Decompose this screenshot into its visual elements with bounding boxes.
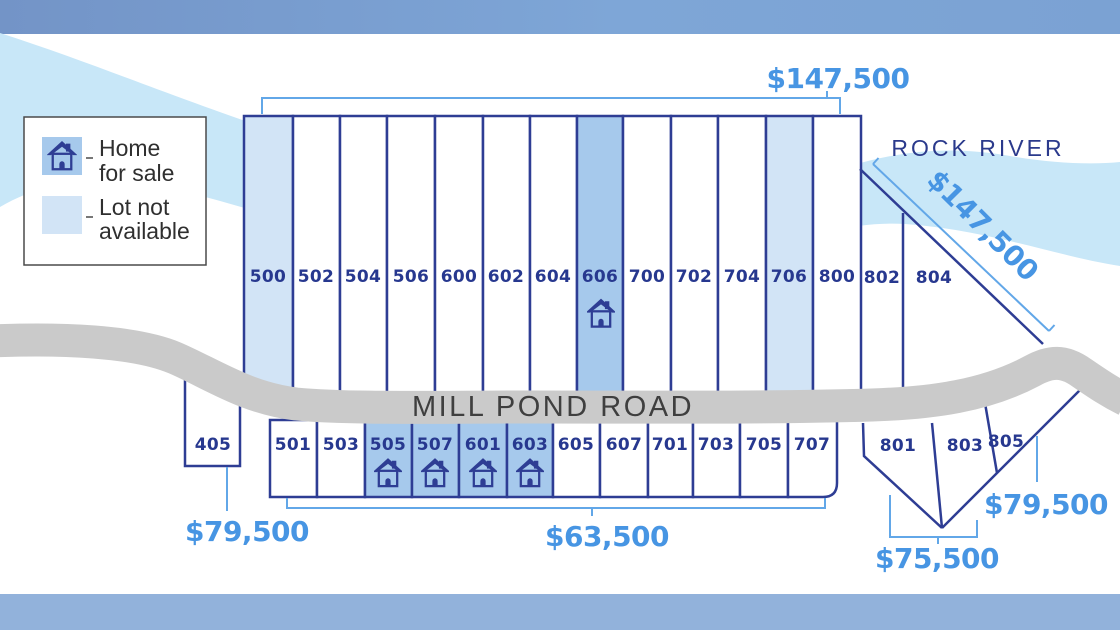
lot-number-405: 405	[195, 435, 231, 455]
bottom-row-lots	[270, 420, 837, 497]
lot-number-607: 607	[606, 435, 642, 455]
lot-605	[553, 420, 600, 497]
bottom-banner-bar	[0, 594, 1120, 630]
top-row-lots	[244, 116, 861, 393]
lot-number-602: 602	[488, 267, 524, 287]
lot-number-801: 801	[880, 436, 916, 456]
lot-707	[788, 420, 837, 497]
lot-number-702: 702	[676, 267, 712, 287]
lot-800	[813, 116, 861, 393]
legend-lot-not-available-label-line2: available	[99, 218, 190, 244]
lot-number-704: 704	[724, 267, 760, 287]
lot-number-701: 701	[652, 435, 688, 455]
top-banner-bar	[0, 0, 1120, 34]
lot-number-503: 503	[323, 435, 359, 455]
lot-map-infographic: MILL POND ROAD 500 502 504 506 600 602 6…	[0, 0, 1120, 630]
lot-405-price: $79,500	[185, 515, 309, 548]
lot-number-501: 501	[275, 435, 311, 455]
lot-number-505: 505	[370, 435, 406, 455]
lot-604	[530, 116, 577, 393]
legend-home-for-sale-label-line2: for sale	[99, 160, 174, 186]
road-name-label: MILL POND ROAD	[412, 391, 694, 423]
lot-number-703: 703	[698, 435, 734, 455]
lot-706	[766, 116, 813, 393]
top-row-price: $147,500	[766, 62, 909, 95]
lot-number-804: 804	[916, 268, 952, 288]
lot-number-604: 604	[535, 267, 571, 287]
lot-506	[387, 116, 435, 393]
lot-number-707: 707	[794, 435, 830, 455]
lot-number-605: 605	[558, 435, 594, 455]
lot-number-601: 601	[465, 435, 501, 455]
lot-500	[244, 116, 293, 393]
river-name-label: ROCK RIVER	[891, 135, 1064, 161]
lot-number-800: 800	[819, 267, 855, 287]
lot-805-price: $79,500	[984, 488, 1108, 521]
lot-number-705: 705	[746, 435, 782, 455]
lot-703	[693, 420, 740, 497]
lot-number-506: 506	[393, 267, 429, 287]
lot-704	[718, 116, 766, 393]
lot-602	[483, 116, 530, 393]
lot-606	[577, 116, 623, 393]
map-canvas: MILL POND ROAD 500 502 504 506 600 602 6…	[0, 0, 1120, 630]
bottom-row-price: $63,500	[545, 520, 669, 553]
lot-501	[270, 420, 317, 497]
top-row-lot-numbers: 500 502 504 506 600 602 604 606 700 702 …	[250, 267, 952, 288]
lot-number-802: 802	[864, 268, 900, 288]
lot-number-600: 600	[441, 267, 477, 287]
lots-801-803-price: $75,500	[875, 542, 999, 575]
legend-lot-not-available-label-line1: Lot not	[99, 194, 170, 220]
lot-number-500: 500	[250, 267, 286, 287]
lot-number-700: 700	[629, 267, 665, 287]
lot-607	[600, 420, 648, 497]
lot-705	[740, 420, 788, 497]
legend-lot-not-available-swatch	[42, 196, 82, 234]
lot-504	[340, 116, 387, 393]
lot-600	[435, 116, 483, 393]
lot-700	[623, 116, 671, 393]
lot-503	[317, 420, 365, 497]
lot-number-606: 606	[582, 267, 618, 287]
lot-number-805: 805	[988, 432, 1024, 452]
lot-702	[671, 116, 718, 393]
lot-number-803: 803	[947, 436, 983, 456]
lot-502	[293, 116, 340, 393]
lot-701	[648, 420, 693, 497]
lot-number-507: 507	[417, 435, 453, 455]
lot-number-504: 504	[345, 267, 381, 287]
legend-home-for-sale-label-line1: Home	[99, 135, 160, 161]
legend: Home for sale Lot not available	[24, 117, 206, 265]
lot-number-706: 706	[771, 267, 807, 287]
lot-number-603: 603	[512, 435, 548, 455]
lot-number-502: 502	[298, 267, 334, 287]
